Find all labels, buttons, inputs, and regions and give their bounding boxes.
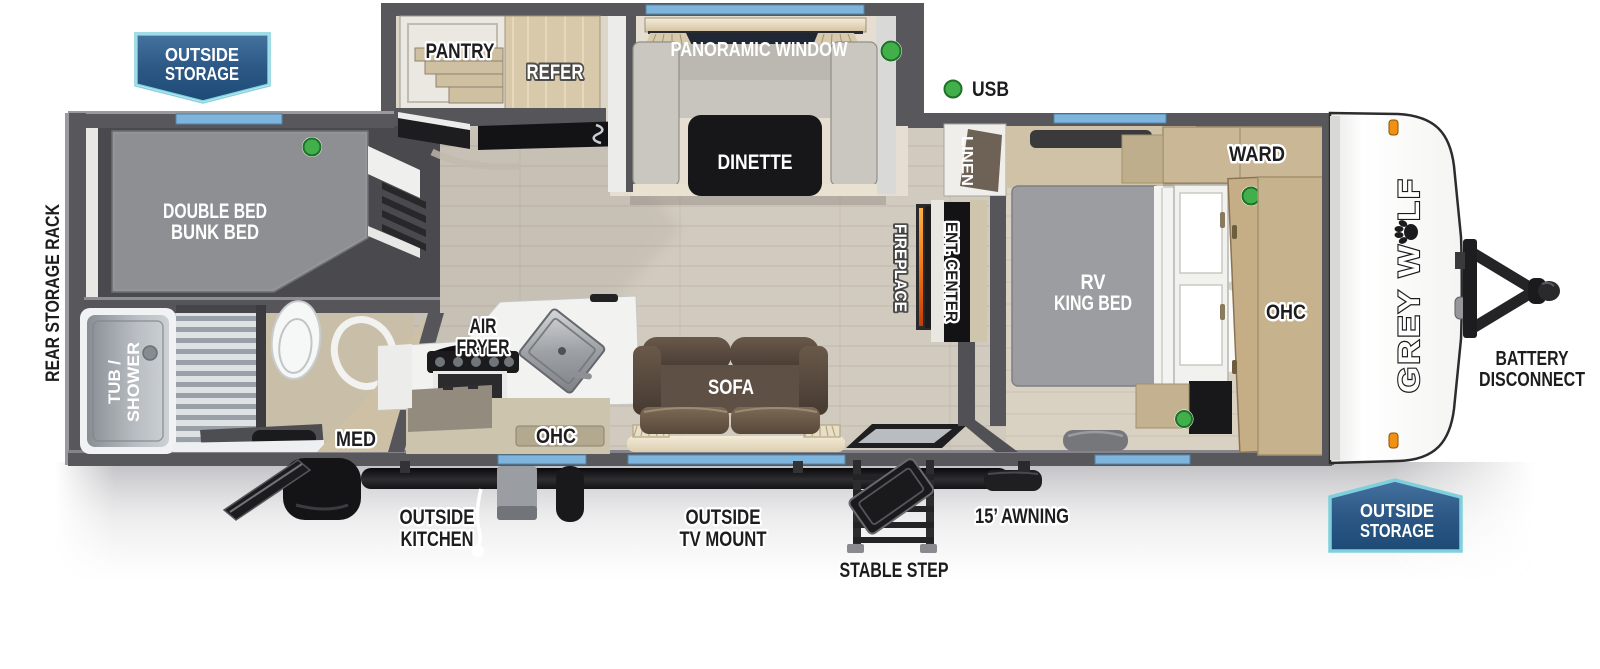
- svg-text:DISCONNECT: DISCONNECT: [1479, 369, 1585, 391]
- svg-text:GREY W: GREY W: [1393, 243, 1426, 393]
- svg-text:TV MOUNT: TV MOUNT: [680, 528, 767, 551]
- svg-text:AIR: AIR: [470, 315, 497, 338]
- svg-text:FRYER: FRYER: [457, 336, 510, 359]
- svg-text:OUTSIDE: OUTSIDE: [400, 506, 475, 529]
- svg-text:USB: USB: [972, 78, 1009, 101]
- svg-text:STORAGE: STORAGE: [1360, 520, 1434, 541]
- svg-text:15’ AWNING: 15’ AWNING: [975, 505, 1069, 528]
- svg-text:DINETTE: DINETTE: [718, 151, 793, 174]
- svg-text:PANORAMIC WINDOW: PANORAMIC WINDOW: [671, 39, 848, 61]
- svg-text:SHOWER: SHOWER: [124, 342, 143, 422]
- svg-text:BATTERY: BATTERY: [1496, 348, 1570, 370]
- svg-text:WARD: WARD: [1229, 143, 1285, 166]
- svg-text:OUTSIDE: OUTSIDE: [165, 44, 239, 65]
- svg-text:KING BED: KING BED: [1054, 292, 1132, 315]
- svg-text:REFER: REFER: [527, 61, 584, 84]
- svg-text:RV: RV: [1081, 271, 1106, 294]
- svg-text:STORAGE: STORAGE: [165, 63, 239, 84]
- svg-text:DOUBLE BED: DOUBLE BED: [163, 200, 267, 223]
- svg-text:FIREPLACE: FIREPLACE: [891, 224, 910, 312]
- svg-text:TUB /: TUB /: [105, 360, 124, 404]
- svg-text:SOFA: SOFA: [708, 376, 754, 399]
- svg-text:OUTSIDE: OUTSIDE: [686, 506, 761, 529]
- svg-text:OHC: OHC: [536, 425, 576, 448]
- svg-text:REAR STORAGE RACK: REAR STORAGE RACK: [43, 204, 64, 382]
- svg-text:LF: LF: [1393, 177, 1426, 221]
- svg-text:OHC: OHC: [1266, 301, 1306, 324]
- svg-text:OUTSIDE: OUTSIDE: [1360, 500, 1434, 521]
- svg-text:ENT. CENTER: ENT. CENTER: [942, 222, 961, 322]
- svg-text:KITCHEN: KITCHEN: [401, 528, 474, 551]
- svg-text:MED: MED: [336, 428, 376, 451]
- svg-text:BUNK BED: BUNK BED: [171, 221, 259, 244]
- svg-text:LINEN: LINEN: [958, 136, 975, 186]
- svg-text:STABLE STEP: STABLE STEP: [840, 559, 949, 582]
- svg-text:PANTRY: PANTRY: [426, 40, 495, 63]
